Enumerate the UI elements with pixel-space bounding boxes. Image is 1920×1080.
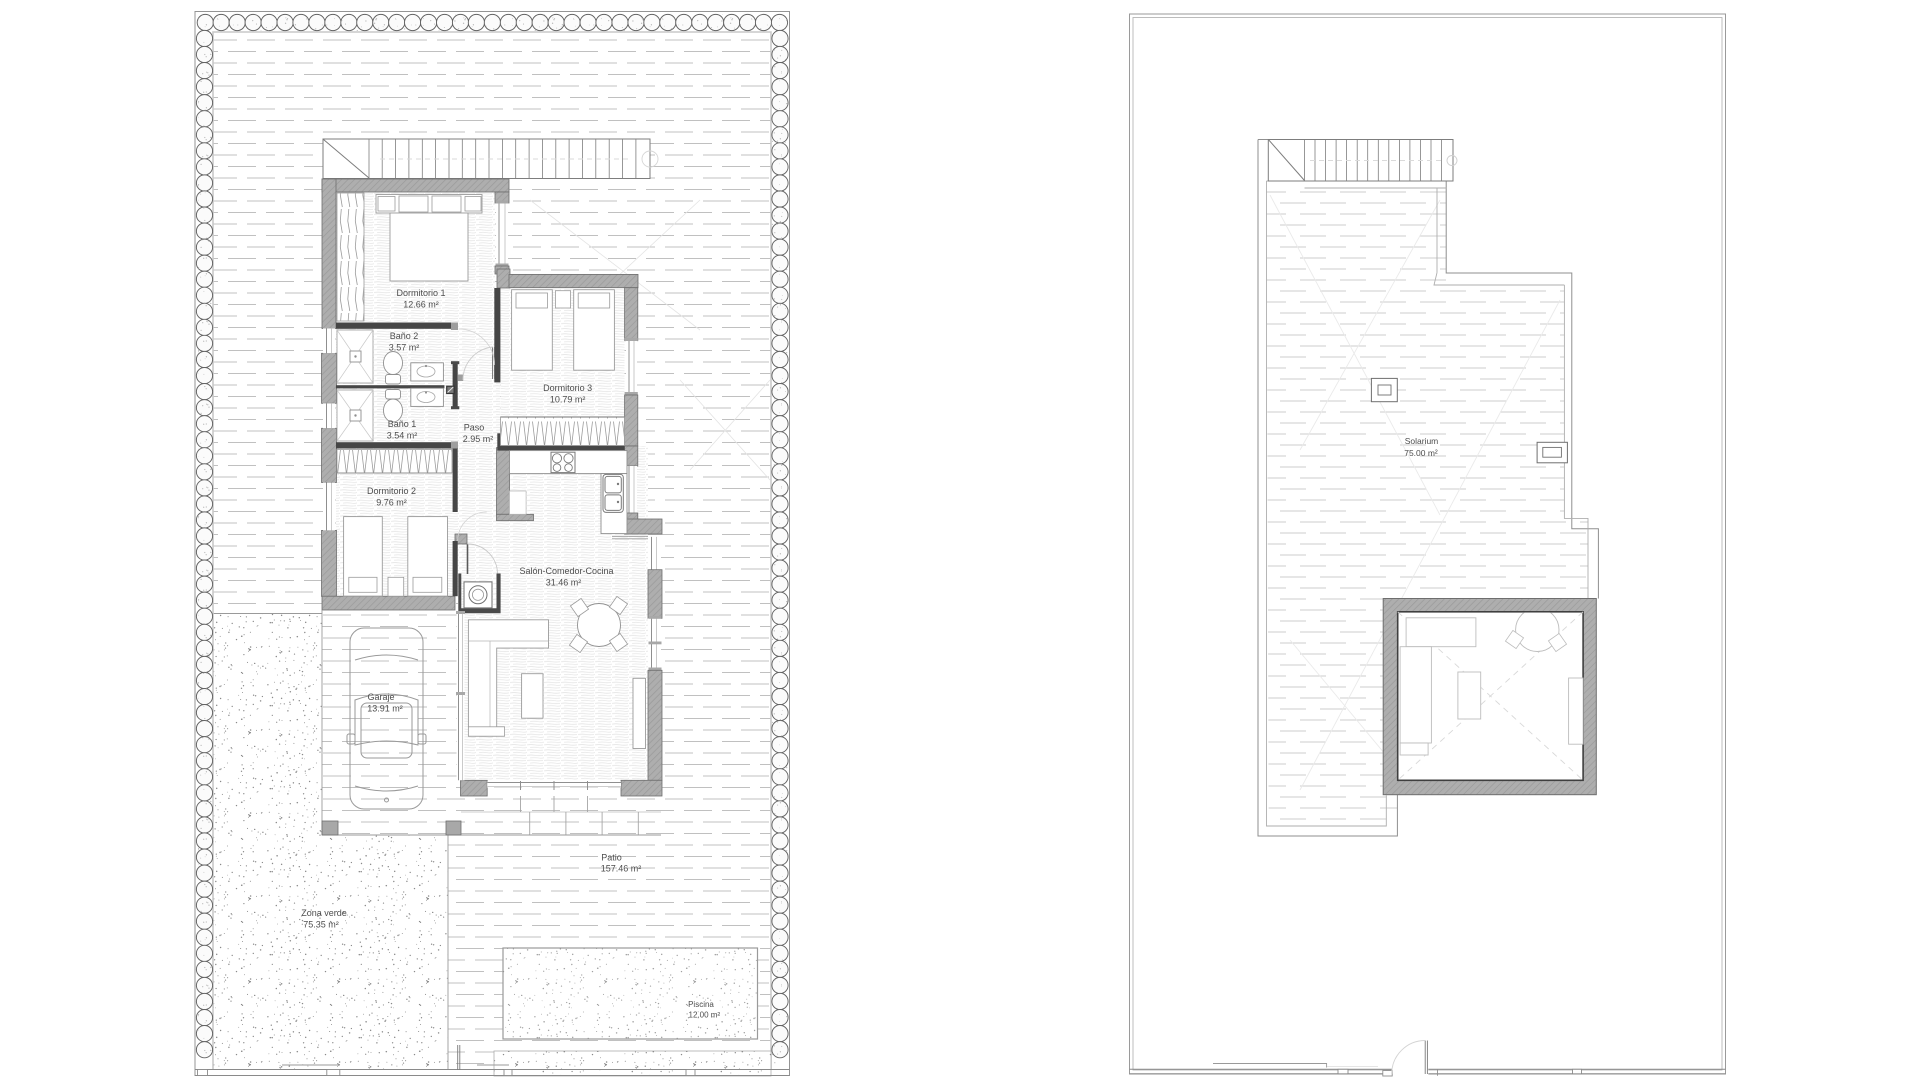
svg-text:Piscina: Piscina (688, 1000, 714, 1009)
svg-text:Baño 1: Baño 1 (388, 419, 417, 429)
svg-text:3.57 m²: 3.57 m² (389, 343, 420, 353)
svg-text:9.76 m²: 9.76 m² (376, 498, 407, 508)
svg-text:75.35 m²: 75.35 m² (303, 919, 339, 929)
svg-text:31.46 m²: 31.46 m² (546, 578, 582, 588)
svg-text:2.95 m²: 2.95 m² (463, 434, 494, 444)
svg-text:Dormitorio 1: Dormitorio 1 (396, 288, 445, 298)
svg-text:12.66 m²: 12.66 m² (403, 300, 439, 310)
svg-text:Solarium: Solarium (1405, 436, 1439, 446)
svg-text:Baño 2: Baño 2 (390, 331, 419, 341)
svg-text:3.54 m²: 3.54 m² (387, 431, 418, 441)
svg-text:Salón-Comedor-Cocina: Salón-Comedor-Cocina (519, 566, 613, 576)
svg-text:12.00 m²: 12.00 m² (689, 1010, 721, 1019)
svg-text:Patio: Patio (601, 853, 622, 863)
svg-text:157.46 m²: 157.46 m² (601, 864, 642, 874)
svg-text:Dormitorio 2: Dormitorio 2 (367, 486, 416, 496)
svg-text:13.91 m²: 13.91 m² (367, 703, 403, 713)
svg-text:Zona verde: Zona verde (301, 908, 347, 918)
svg-text:Paso: Paso (464, 423, 485, 433)
svg-text:Garaje: Garaje (367, 692, 394, 702)
svg-text:10.79 m²: 10.79 m² (550, 395, 586, 405)
svg-text:75.00 m²: 75.00 m² (1404, 448, 1438, 458)
svg-text:Dormitorio 3: Dormitorio 3 (543, 383, 592, 393)
